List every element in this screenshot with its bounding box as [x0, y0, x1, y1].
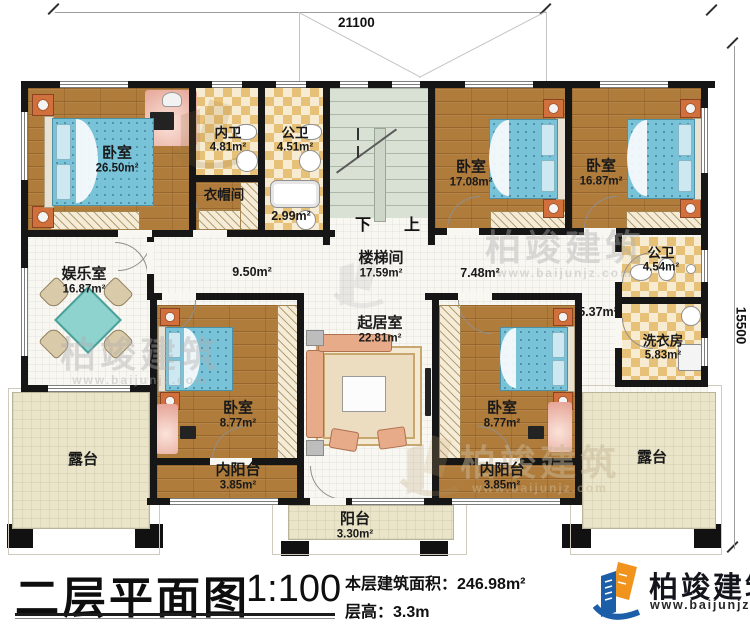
window — [276, 81, 306, 88]
window — [48, 385, 130, 392]
door-gap — [615, 252, 622, 282]
area-label-cloakroom: 2.99m² — [271, 209, 311, 223]
room-label-bedroom-4: 卧室8.77m² — [220, 400, 256, 429]
area-label-hall-right: 5.37m² — [578, 305, 618, 319]
dimension-line-right — [734, 46, 735, 549]
tv-icon — [425, 368, 431, 416]
wall-bed5-west — [432, 298, 439, 505]
rug — [156, 404, 178, 454]
door-gap — [310, 498, 346, 505]
lamp-icon — [162, 92, 182, 107]
dimension-top-value: 21100 — [338, 15, 375, 30]
nightstand — [160, 308, 180, 326]
stair-arrow — [357, 128, 359, 140]
room-label-bedroom-3: 卧室16.87m² — [580, 158, 623, 187]
pillow — [56, 164, 71, 200]
pillow — [678, 160, 692, 192]
window — [170, 498, 278, 505]
rug — [548, 402, 572, 452]
floorplan-canvas: 21100 15500 — [0, 0, 750, 631]
room-label-inner-balcony-right: 内阳台3.85m² — [479, 462, 524, 491]
corner-tick — [705, 4, 717, 16]
window — [352, 498, 424, 505]
title-underline-thin — [15, 618, 335, 619]
pillow — [168, 360, 181, 386]
room-label-bath-public-right: 公卫4.54m² — [643, 246, 679, 273]
window — [212, 81, 242, 88]
corner-tick — [726, 541, 738, 553]
stair-arrow — [357, 146, 359, 158]
pillow — [678, 124, 692, 156]
floor-height-line: 层高：3.3m — [345, 598, 429, 622]
door-gap — [458, 293, 492, 300]
void-guide-right — [546, 12, 547, 81]
wall-laundry-south — [615, 380, 708, 387]
door-gap — [147, 242, 154, 274]
sink-icon — [681, 306, 701, 326]
room-label-terrace-right: 露台 — [637, 450, 667, 467]
door-gap — [615, 318, 622, 348]
wall-bed4-west — [150, 298, 157, 505]
room-label-living: 起居室22.81m² — [357, 315, 402, 344]
room-label-bedroom-5: 卧室8.77m² — [484, 400, 520, 429]
stair-down-label: 下 — [355, 211, 371, 235]
nightstand — [543, 99, 564, 118]
window — [452, 498, 560, 505]
window — [701, 108, 708, 173]
corner-tick — [726, 37, 738, 49]
tv-icon — [528, 426, 544, 439]
window — [600, 81, 668, 88]
wall-bed5-north — [425, 293, 582, 300]
plan-title: 二层平面图 — [15, 562, 250, 626]
pillow — [541, 124, 555, 156]
room-label-terrace-left: 露台 — [68, 452, 98, 469]
void-guide-left — [299, 12, 300, 81]
wall-bathR-laundry — [622, 297, 701, 304]
room-label-inner-balcony-left: 内阳台3.85m² — [215, 462, 260, 491]
window — [21, 112, 28, 180]
pillow — [56, 124, 71, 160]
room-label-balcony: 阳台3.30m² — [337, 511, 373, 540]
wall-master-east — [189, 88, 196, 230]
door-gap — [193, 230, 227, 237]
window — [465, 81, 533, 88]
sofa — [306, 350, 324, 438]
closet-hatch — [50, 211, 140, 230]
bathtub-icon — [270, 180, 320, 208]
door-gap — [447, 228, 479, 235]
side-table — [306, 330, 324, 346]
dimension-right-value: 15500 — [733, 307, 748, 345]
brand-logo-icon — [593, 560, 647, 624]
nightstand — [680, 99, 701, 118]
floor-drain-icon — [686, 264, 696, 274]
nightstand — [32, 94, 54, 116]
nightstand — [543, 199, 564, 218]
door-gap — [162, 293, 196, 300]
room-label-stairwell: 楼梯间17.59m² — [358, 250, 403, 279]
window — [392, 81, 420, 88]
door-gap — [584, 228, 616, 235]
void-diagonal — [419, 11, 546, 78]
coffee-table — [342, 376, 386, 412]
nightstand — [553, 308, 573, 326]
wall-stair-west — [323, 81, 330, 245]
room-label-bedroom-master: 卧室26.50m² — [96, 145, 139, 174]
tv-icon — [180, 426, 196, 439]
title-block: 二层平面图 1:100 本层建筑面积：246.98m² 层高：3.3m 柏竣建筑… — [0, 556, 750, 631]
window — [340, 81, 368, 88]
room-label-bath-inner: 内卫4.81m² — [210, 126, 246, 153]
floor-area-line: 本层建筑面积：246.98m² — [345, 570, 526, 594]
pillow — [168, 332, 181, 358]
door-gap — [118, 230, 152, 237]
window — [21, 268, 28, 356]
wardrobe-hatch — [439, 305, 461, 460]
room-label-bath-public-top: 公卫4.51m² — [277, 126, 313, 153]
window — [701, 338, 708, 366]
armchair — [377, 426, 408, 450]
plan-scale: 1:100 — [246, 568, 341, 611]
side-table — [306, 440, 324, 456]
brand-url: www.baijunjz.com — [650, 598, 750, 612]
nightstand — [32, 206, 54, 228]
pillow — [541, 160, 555, 192]
room-label-cloakroom: 衣帽间 — [204, 189, 245, 204]
wall-bed2-bed3 — [565, 88, 572, 228]
wall-bed4-east — [297, 298, 304, 505]
wall-bath-inner-south — [196, 175, 258, 182]
wall-corridor-north-left — [21, 230, 335, 237]
nightstand — [680, 199, 701, 218]
room-label-bedroom-2: 卧室17.08m² — [450, 159, 493, 188]
area-label-hall-mid: 7.48m² — [460, 266, 500, 280]
wall-bed5-east — [575, 298, 582, 505]
room-label-entertainment: 娱乐室16.87m² — [61, 266, 106, 295]
wall-stair-east — [428, 81, 435, 245]
room-label-laundry: 洗衣房5.83m² — [643, 334, 684, 361]
pillow — [552, 332, 565, 358]
wardrobe-hatch — [277, 305, 299, 460]
wall-bath-divider — [258, 88, 265, 230]
area-label-hall-left: 9.50m² — [232, 265, 272, 279]
pillow — [552, 360, 565, 386]
window — [701, 250, 708, 282]
window — [60, 81, 128, 88]
dimension-tick — [47, 3, 59, 15]
stair-up-label: 上 — [404, 211, 420, 235]
title-underline — [15, 613, 335, 616]
